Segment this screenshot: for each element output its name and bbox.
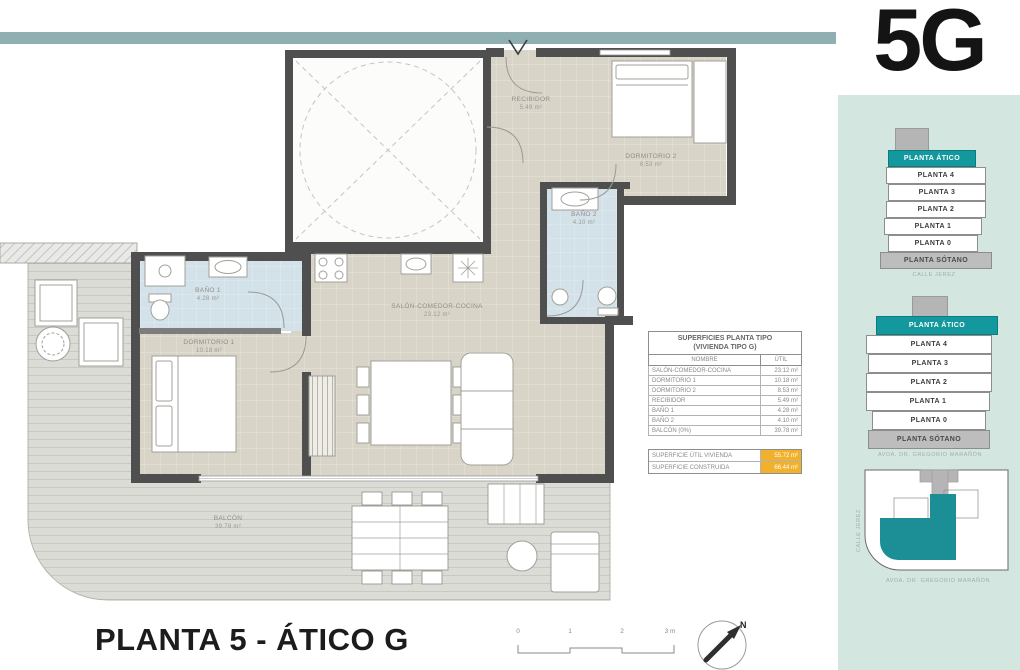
room-label-bano2: BAÑO 24.10 m² bbox=[571, 210, 597, 227]
planter-icon bbox=[36, 327, 70, 361]
table-row: BAÑO 14.28 m² bbox=[648, 406, 802, 416]
scale-tick: 2 bbox=[620, 628, 624, 635]
stack-level: PLANTA 0 bbox=[888, 235, 978, 252]
bed2-icon bbox=[612, 61, 692, 137]
unit-label: 5G bbox=[840, 0, 1018, 94]
scale-tick: 3 m bbox=[665, 628, 676, 635]
stack-level: PLANTA 0 bbox=[872, 411, 986, 430]
scale-bar-drawing bbox=[505, 618, 705, 663]
table-row: SALÓN-COMEDOR-COCINA23.12 m² bbox=[648, 366, 802, 376]
surfaces-table-columns: NOMBRE ÚTIL bbox=[648, 355, 802, 366]
stack-level: PLANTA 1 bbox=[884, 218, 982, 235]
lounger-icon bbox=[551, 532, 599, 592]
stack-level-atico: PLANTA ÁTICO bbox=[876, 316, 998, 335]
compass-north-label: N bbox=[740, 620, 747, 630]
scale-tick: 0 bbox=[516, 628, 520, 635]
compass-drawing bbox=[690, 612, 760, 670]
street-caption: AVDA. DR. GREGORIO MARAÑÓN bbox=[886, 578, 990, 584]
table-row: RECIBIDOR5.49 m² bbox=[648, 396, 802, 406]
stack-level: PLANTA 2 bbox=[886, 201, 986, 218]
room-label-bano1: BAÑO 14.28 m² bbox=[195, 286, 221, 303]
street-caption: AVDA. DR. GREGORIO MARAÑÓN bbox=[878, 452, 982, 458]
outdoor-table-icon bbox=[507, 541, 537, 571]
stack-level: PLANTA 4 bbox=[886, 167, 986, 184]
surfaces-table-totals: SUPERFICIE ÚTIL VIVIENDA55.72 m² SUPERFI… bbox=[648, 449, 802, 474]
total-row-util: SUPERFICIE ÚTIL VIVIENDA55.72 m² bbox=[649, 450, 801, 461]
table-row: DORMITORIO 28.53 m² bbox=[648, 386, 802, 396]
room-label-balcon: BALCÓN39.78 m² bbox=[214, 514, 243, 531]
fridge-icon bbox=[453, 254, 483, 282]
table-row: BALCÓN (0%)39.78 m² bbox=[648, 426, 802, 436]
total-row-construida: SUPERFICIE CONSTRUIDA66.44 m² bbox=[649, 461, 801, 473]
kitchen-sink-icon bbox=[401, 254, 431, 274]
stack-level-sotano: PLANTA SÓTANO bbox=[880, 252, 992, 269]
stack-level: PLANTA 3 bbox=[888, 184, 986, 201]
page-title: PLANTA 5 - ÁTICO G bbox=[95, 622, 409, 658]
surfaces-table-title: SUPERFICIES PLANTA TIPO (VIVIENDA TIPO G… bbox=[648, 331, 802, 355]
bed1-icon bbox=[152, 356, 236, 452]
wardrobe-icon bbox=[309, 376, 335, 456]
stack-level: PLANTA 2 bbox=[866, 373, 992, 392]
party-wall-hatch bbox=[0, 243, 137, 263]
floorplan-page: RECIBIDOR5.49 m² DORMITORIO 28.53 m² BAÑ… bbox=[0, 0, 1020, 670]
surfaces-table: SUPERFICIES PLANTA TIPO (VIVIENDA TIPO G… bbox=[648, 331, 802, 474]
stack-level-atico: PLANTA ÁTICO bbox=[888, 150, 976, 167]
room-label-salon: SALÓN-COMEDOR-COCINA23.12 m² bbox=[391, 302, 483, 319]
table-row: DORMITORIO 110.18 m² bbox=[648, 376, 802, 386]
stack-level: PLANTA 4 bbox=[866, 335, 992, 354]
sofa-icon bbox=[461, 353, 513, 465]
room-label-dormitorio2: DORMITORIO 28.53 m² bbox=[625, 152, 676, 169]
site-plan-drawing bbox=[840, 462, 1020, 587]
outdoor-dining-icon bbox=[352, 492, 448, 584]
room-label-dormitorio1: DORMITORIO 110.18 m² bbox=[183, 338, 234, 355]
bench-icon bbox=[488, 484, 544, 524]
dining-table-icon bbox=[357, 361, 465, 445]
core-shaft bbox=[289, 54, 487, 246]
room-label-recibidor: RECIBIDOR5.49 m² bbox=[512, 95, 551, 112]
stove-icon bbox=[315, 254, 347, 282]
stack-level-sotano: PLANTA SÓTANO bbox=[868, 430, 990, 449]
scale-tick: 1 bbox=[568, 628, 572, 635]
street-caption: CALLE JEREZ bbox=[913, 272, 956, 278]
stack-level: PLANTA 3 bbox=[868, 354, 992, 373]
street-caption-vertical: CALLE JEREZ bbox=[856, 509, 862, 552]
stack-level: PLANTA 1 bbox=[866, 392, 990, 411]
table-row: BAÑO 24.10 m² bbox=[648, 416, 802, 426]
closet-icon bbox=[694, 61, 726, 143]
